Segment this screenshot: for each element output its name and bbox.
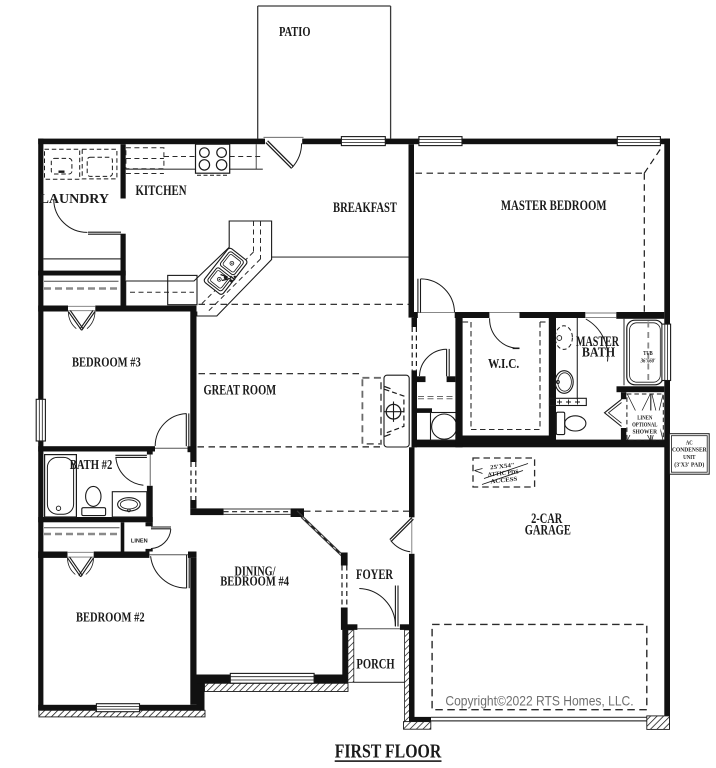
svg-text:BEDROOM #4: BEDROOM #4 (220, 574, 289, 589)
svg-text:W.I.C.: W.I.C. (488, 356, 519, 371)
svg-text:PATIO: PATIO (279, 24, 311, 39)
svg-text:BATH #2: BATH #2 (70, 457, 113, 472)
svg-text:(3'X3' PAD): (3'X3' PAD) (674, 461, 704, 468)
svg-text:BATH: BATH (582, 345, 616, 360)
svg-text:KITCHEN: KITCHEN (135, 183, 187, 199)
svg-text:AC: AC (686, 440, 693, 446)
svg-text:TUB: TUB (643, 351, 653, 357)
svg-text:UNIT: UNIT (683, 455, 695, 461)
svg-text:BREAKFAST: BREAKFAST (333, 200, 397, 216)
svg-text:GREAT ROOM: GREAT ROOM (204, 382, 277, 399)
svg-text:OPTIONAL: OPTIONAL (632, 423, 657, 429)
svg-text:LINEN: LINEN (131, 539, 148, 545)
svg-text:CONDENSER: CONDENSER (672, 448, 707, 454)
svg-text:Copyright©2022 RTS Homes, LLC.: Copyright©2022 RTS Homes, LLC. (445, 693, 633, 709)
svg-text:36'x60': 36'x60' (640, 359, 656, 365)
svg-text:PORCH: PORCH (356, 656, 395, 672)
svg-text:GARAGE: GARAGE (525, 522, 571, 538)
svg-text:FIRST FLOOR: FIRST FLOOR (335, 741, 442, 762)
svg-text:BEDROOM #2: BEDROOM #2 (76, 609, 145, 624)
svg-text:LINEN: LINEN (637, 416, 653, 422)
svg-text:LAUNDRY: LAUNDRY (40, 191, 110, 206)
svg-text:MASTER BEDROOM: MASTER BEDROOM (501, 198, 607, 214)
svg-text:FOYER: FOYER (356, 567, 393, 583)
svg-text:BEDROOM #3: BEDROOM #3 (72, 354, 141, 369)
svg-text:SHOWER: SHOWER (633, 430, 658, 436)
